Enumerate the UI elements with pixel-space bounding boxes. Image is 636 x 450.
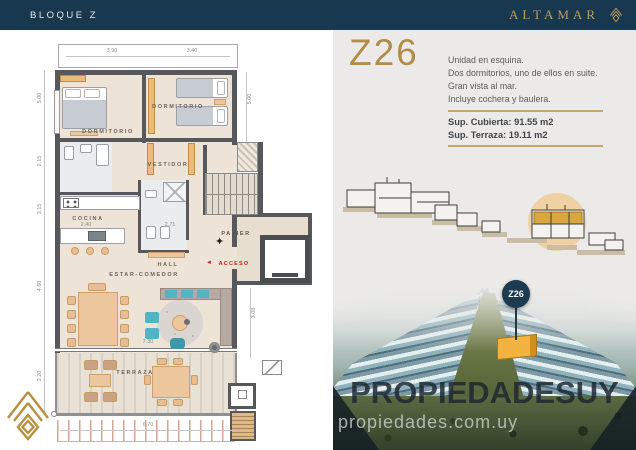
dressing-wardrobe	[188, 143, 195, 175]
dining-table	[78, 292, 118, 346]
surface-covered: Sup. Cubierta: 91.55 m2	[448, 117, 633, 127]
watermark-secondary: propiedades.com.uy	[338, 412, 518, 433]
room-label-hall: HALL	[148, 262, 188, 268]
column-marker	[51, 411, 57, 417]
wall-bath-right	[186, 180, 189, 240]
brochure-page: BLOQUE Z ALTAMAR 3.90 3.40	[0, 0, 636, 450]
lounge-chair	[103, 360, 117, 370]
sink	[145, 190, 157, 198]
dining-chair	[67, 338, 76, 347]
storage-fixture	[238, 390, 247, 399]
terrace-parapet	[55, 413, 237, 416]
kitchen-sink	[88, 231, 106, 241]
dim-left-bath: 2.15	[37, 149, 43, 173]
bed-single-pillow	[217, 81, 225, 95]
dim-left-living: 4.60	[37, 274, 43, 298]
north-symbol-icon: ✦	[215, 235, 229, 249]
outdoor-chair	[173, 399, 183, 406]
stair-shaft-hatch	[237, 142, 258, 172]
stool	[86, 247, 94, 255]
bed-double-blanket	[63, 100, 106, 128]
dining-chair-head	[88, 283, 106, 291]
wall-kitchen	[55, 192, 140, 195]
wall-living-right	[232, 269, 237, 352]
dim-living-width: 7.30	[128, 339, 168, 345]
dining-chair	[67, 296, 76, 305]
description-line: Unidad en esquina.	[448, 54, 633, 67]
dim-right-living: 3.08	[251, 301, 257, 325]
elevator-door	[272, 273, 298, 277]
lounge-chair	[103, 392, 117, 402]
unit-map-pin: Z26	[502, 280, 530, 308]
pouf	[170, 338, 185, 349]
wall-stair-right	[258, 142, 263, 215]
pin-stem	[515, 306, 517, 340]
unit-code-title: Z26	[349, 32, 419, 74]
altamar-logo-watermark	[6, 388, 50, 444]
outdoor-chair	[157, 358, 167, 365]
floor-plan: 3.90 3.40	[0, 30, 333, 450]
dim-bath-width: 2.71	[150, 222, 190, 228]
armchair	[145, 328, 159, 339]
bed-single-blanket	[177, 79, 213, 97]
dimension-line-left	[44, 70, 45, 415]
console-table	[148, 252, 185, 258]
access-label: ACCESO	[213, 261, 255, 267]
lounge-chair	[84, 392, 98, 402]
stair-landing-line	[205, 194, 258, 195]
header-bar: BLOQUE Z ALTAMAR	[0, 0, 636, 30]
wall-bath-left	[138, 180, 141, 252]
sofa-cushion	[165, 290, 177, 298]
elevator	[260, 235, 310, 283]
description-line: Gran vista al mar.	[448, 80, 633, 93]
room-label-bedroom-second: DORMITORIO	[148, 104, 208, 110]
dim-kitchen-width: 2.40	[66, 222, 106, 228]
dining-chair	[67, 324, 76, 333]
coffee-table-accent	[184, 319, 190, 325]
sofa-chaise	[220, 288, 232, 346]
block-label: BLOQUE Z	[30, 10, 98, 21]
service-box	[262, 360, 282, 375]
dim-right-bedroom: 5.00	[247, 87, 253, 111]
divider-gold	[448, 110, 603, 112]
stool	[101, 247, 109, 255]
dimension-line-bottom	[60, 430, 236, 431]
lounge-chair	[84, 360, 98, 370]
surface-terrace: Sup. Terraza: 19.11 m2	[448, 130, 633, 140]
dimension-line-top	[66, 56, 230, 57]
watermark-primary: PROPIEDADESUY	[333, 375, 636, 411]
armchair	[145, 312, 159, 323]
room-label-bedroom-main: DORMITORIO	[78, 129, 138, 135]
outdoor-chair	[144, 375, 151, 385]
sofa-cushion	[197, 290, 209, 298]
dining-chair	[120, 296, 129, 305]
stool	[71, 247, 79, 255]
dressing-wardrobe	[147, 143, 154, 175]
wall-bedroom-divider	[142, 75, 146, 143]
dim-terrace-width: 6.70	[128, 422, 168, 428]
description-line: Incluye cochera y baulera.	[448, 93, 633, 106]
unit-highlight-block	[497, 334, 537, 360]
outdoor-chair	[157, 399, 167, 406]
bed-double-pillow	[65, 89, 81, 98]
dim-left-bedroom: 5.00	[37, 86, 43, 110]
sofa-cushion	[181, 290, 193, 298]
bed-double-pillow	[84, 89, 100, 98]
room-label-dressing: VESTIDOR	[140, 162, 196, 168]
dining-chair	[120, 310, 129, 319]
wall-right-bedrooms	[232, 70, 237, 145]
dim-left-terrace: 2.20	[37, 364, 43, 388]
toilet	[64, 146, 74, 160]
bathtub	[96, 144, 109, 166]
wardrobe	[60, 75, 86, 82]
floor-lamp	[209, 342, 220, 353]
outdoor-chair	[191, 375, 198, 385]
divider-gold	[448, 145, 603, 147]
description-line: Dos dormitorios, uno de ellos en suite.	[448, 67, 633, 80]
window-bedroom	[54, 90, 60, 134]
exterior-stairs	[230, 411, 256, 441]
wall-bedrooms-bottom	[55, 138, 237, 142]
terrace-rail-left	[55, 353, 57, 413]
dining-chair	[67, 310, 76, 319]
nightstand	[214, 99, 226, 105]
room-label-terrace: TERRAZA	[100, 370, 170, 376]
sink	[80, 144, 92, 153]
unit-info-panel: Z26 Unidad en esquina. Dos dormitorios, …	[333, 30, 636, 450]
dining-chair	[120, 324, 129, 333]
brand: ALTAMAR	[509, 7, 624, 23]
outdoor-chair	[173, 358, 183, 365]
shower-box	[163, 182, 187, 202]
section-elevation-drawing	[337, 150, 631, 268]
altamar-logo-icon	[608, 7, 624, 23]
dim-top-left: 3.90	[92, 48, 132, 54]
dim-left-kitchen: 3.15	[37, 197, 43, 221]
bed-single-pillow	[217, 109, 225, 123]
section-unit-highlight	[534, 212, 582, 224]
room-label-living: ESTAR-COMEDOR	[100, 272, 188, 278]
brand-name: ALTAMAR	[509, 7, 599, 23]
dim-top-right: 3.40	[172, 48, 212, 54]
stove	[63, 198, 79, 208]
